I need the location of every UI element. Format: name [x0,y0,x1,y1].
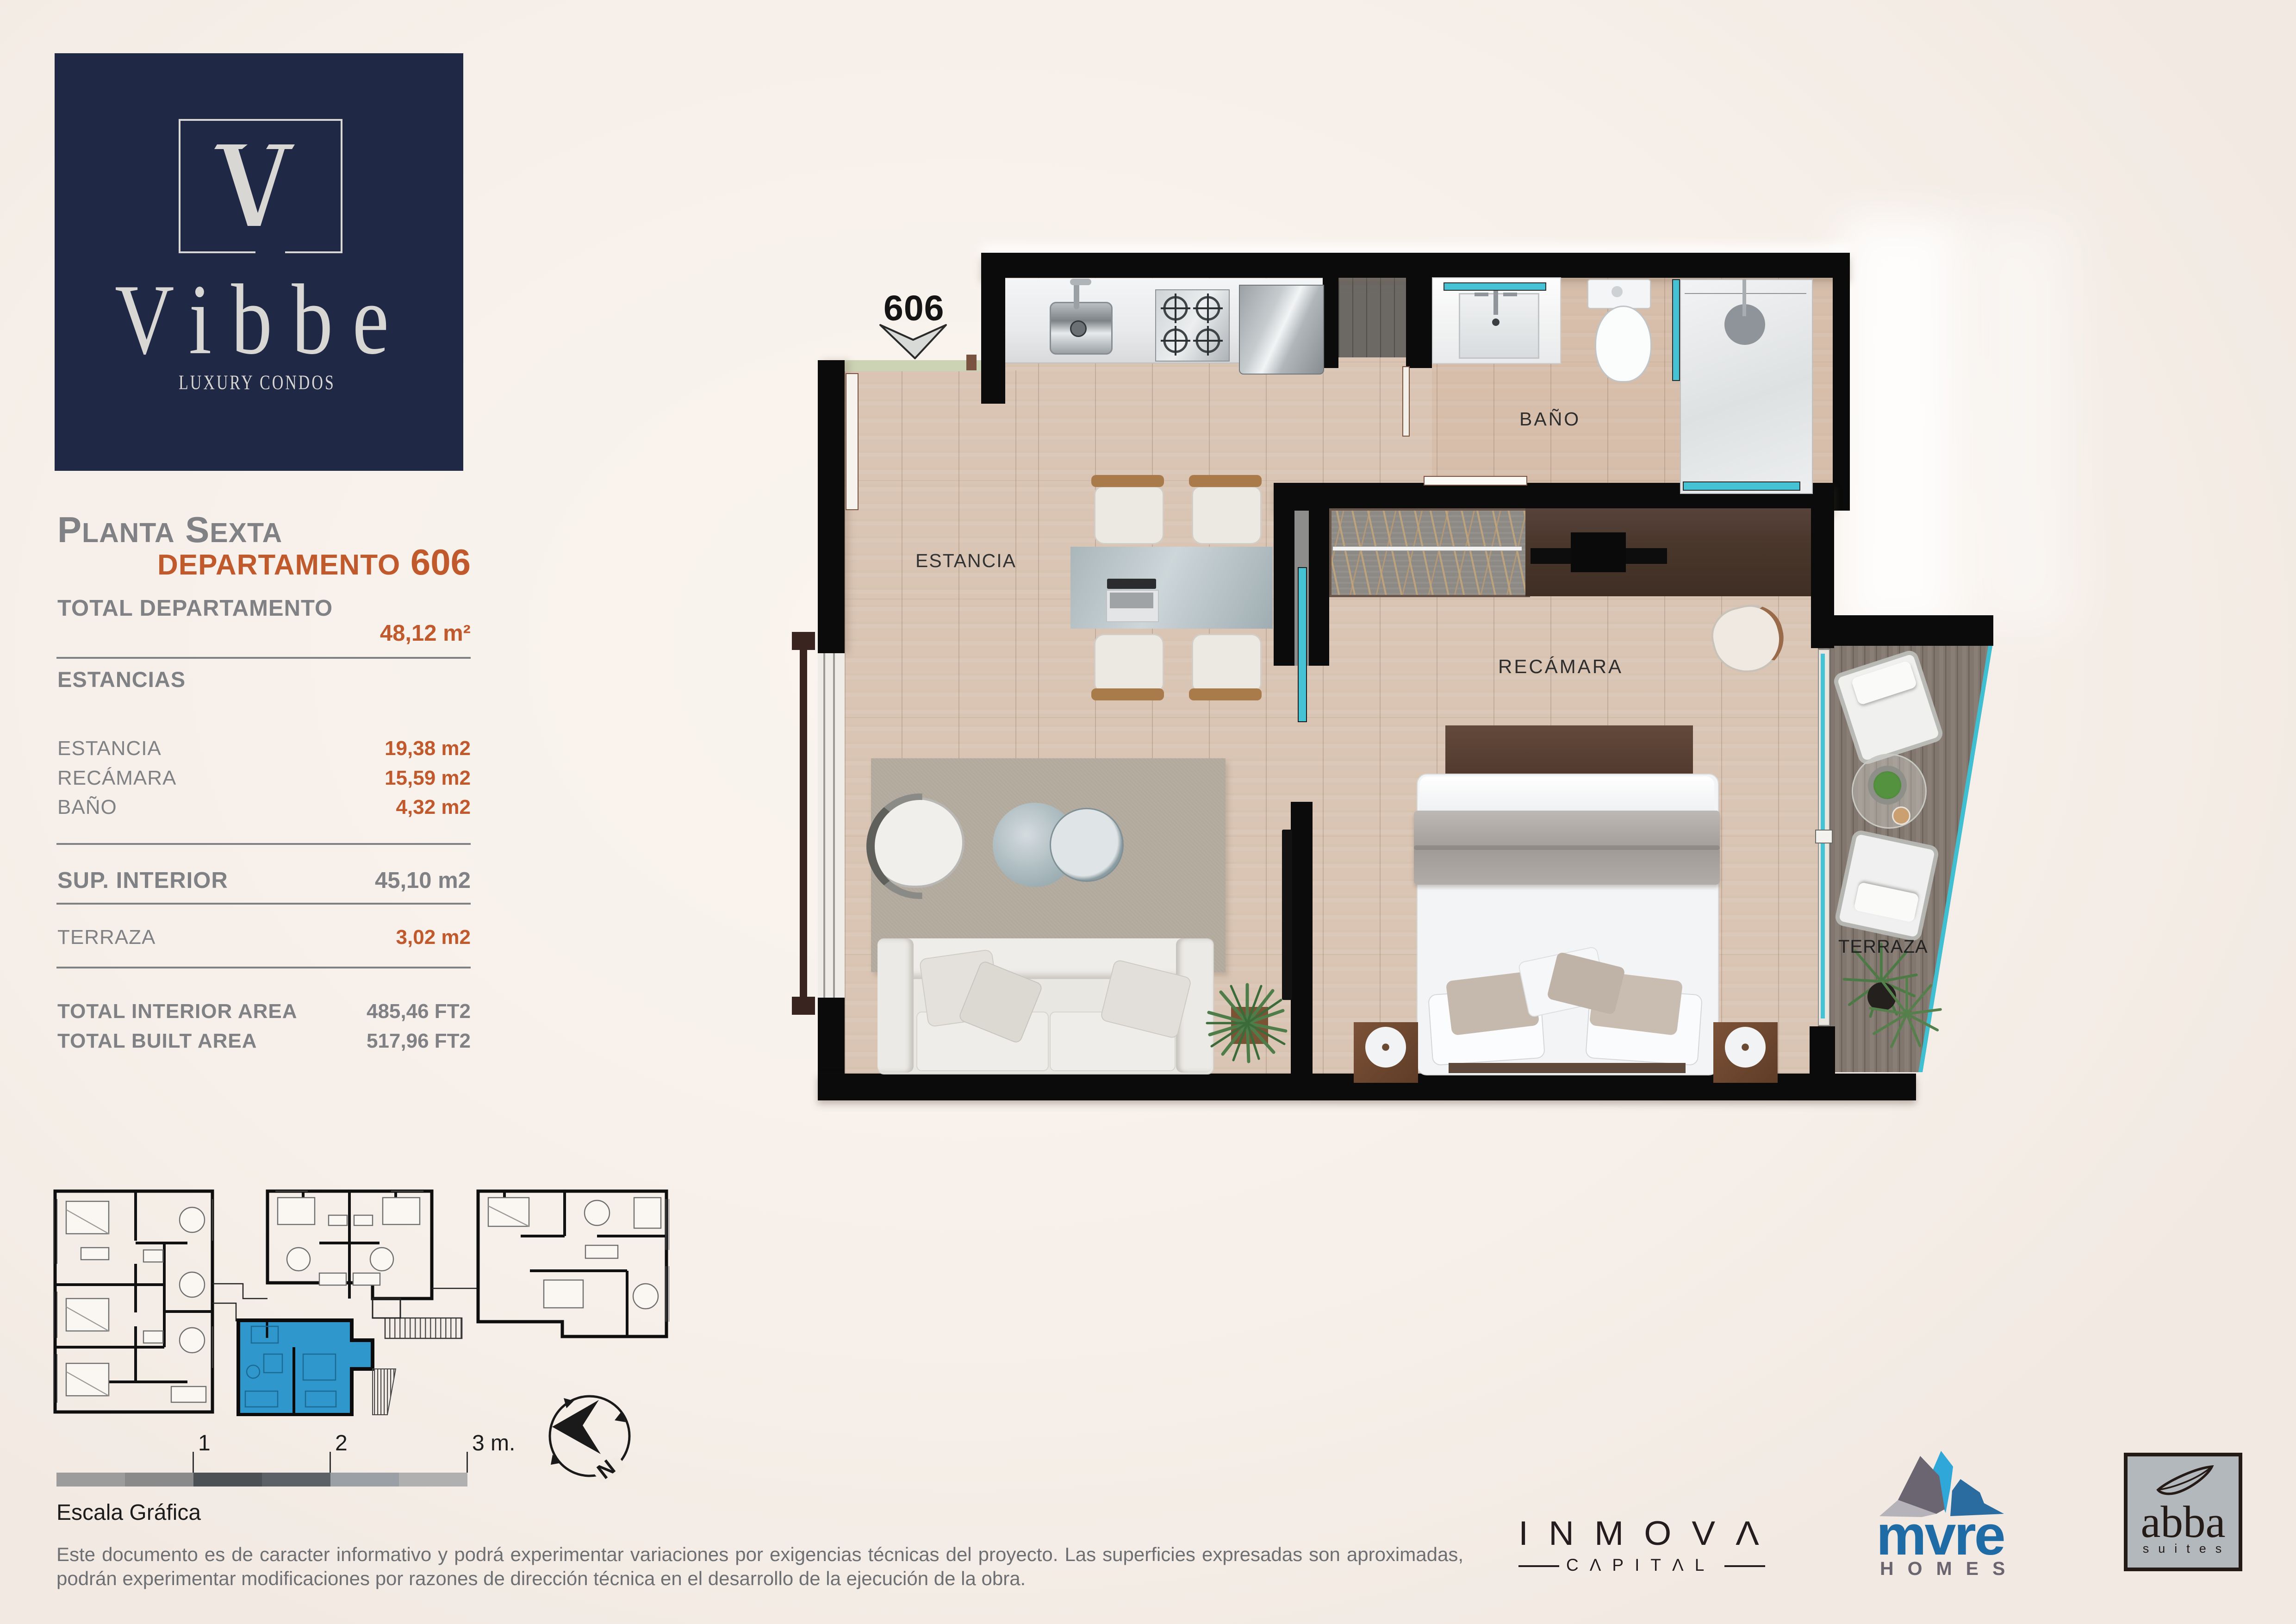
svg-text:HOMES: HOMES [1880,1558,2018,1579]
svg-text:mvre: mvre [1876,1504,2004,1567]
